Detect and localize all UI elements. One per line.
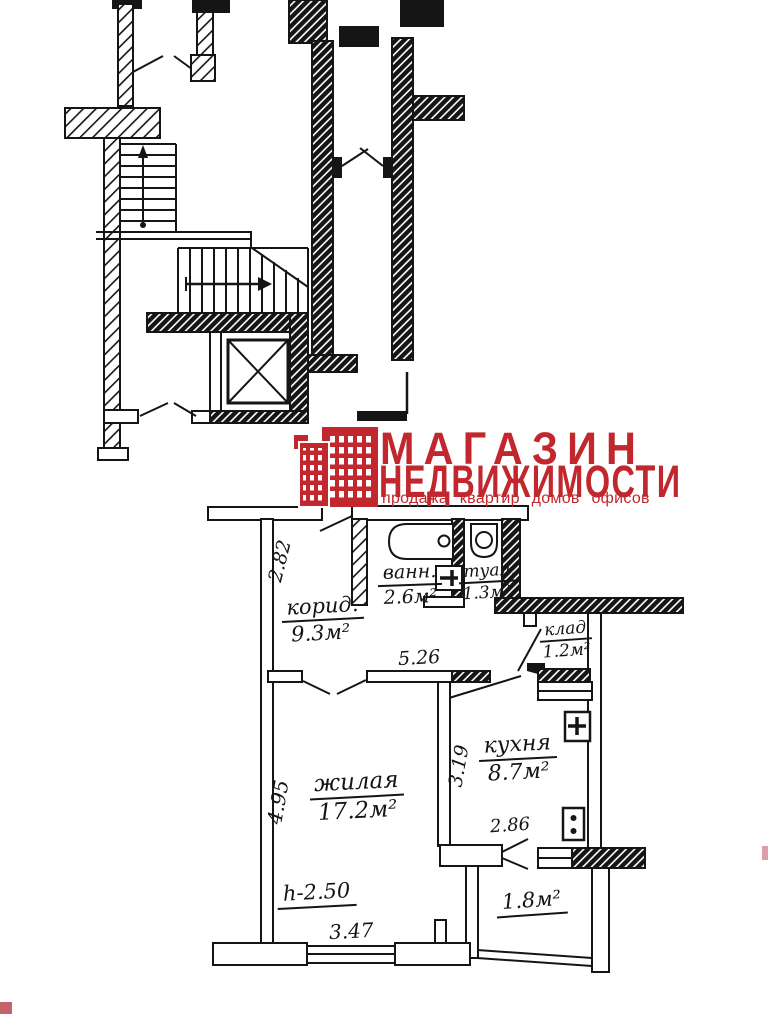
common-area-plan bbox=[65, 0, 464, 460]
closet-area: 1.2м² bbox=[539, 639, 594, 662]
label-toilet: туал. 1.3м² bbox=[458, 561, 514, 604]
label-closet: клад 1.2м² bbox=[538, 618, 595, 662]
label-ceiling-height: h-2.50 bbox=[276, 878, 357, 910]
kitchen-name: кухня bbox=[478, 731, 557, 762]
living-room-area: 17.2м² bbox=[305, 795, 410, 826]
bathtub-icon bbox=[389, 524, 453, 559]
label-corridor: корид. 9.3м² bbox=[281, 593, 359, 646]
scan-artifact bbox=[0, 1002, 12, 1014]
logo-tagline: продажа квартир домов офисов bbox=[382, 490, 650, 508]
label-bathroom: ванн. 2.6м² bbox=[373, 561, 447, 609]
building-icon bbox=[294, 425, 380, 509]
toilet-area: 1.3м² bbox=[459, 582, 514, 604]
toilet-icon bbox=[471, 524, 497, 557]
electric-panel-icon bbox=[563, 808, 584, 840]
staircase bbox=[96, 144, 308, 313]
dim-kitchen-width: 2.86 bbox=[489, 814, 530, 838]
label-balcony-area: 1.8м² bbox=[495, 886, 568, 919]
corridor-name: корид. bbox=[281, 593, 364, 623]
label-kitchen: кухня 8.7м² bbox=[469, 731, 568, 787]
floor-plan-drawing bbox=[0, 0, 768, 1024]
bathroom-name: ванн. bbox=[377, 561, 441, 587]
dim-living-width: 3.47 bbox=[328, 918, 374, 944]
floorplan-scan: МАГАЗИН НЕДВИЖИМОСТИ продажа квартир дом… bbox=[0, 0, 768, 1024]
corridor-area: 9.3м² bbox=[282, 619, 359, 647]
toilet-name: туал. bbox=[458, 560, 521, 585]
vent-box-icon bbox=[565, 712, 590, 741]
scan-artifact bbox=[762, 846, 768, 860]
dim-corridor-width: 5.26 bbox=[397, 646, 440, 670]
bathroom-area: 2.6м² bbox=[374, 584, 447, 608]
kitchen-area: 8.7м² bbox=[470, 757, 567, 787]
label-living-room: жилая 17.2м² bbox=[304, 767, 411, 826]
